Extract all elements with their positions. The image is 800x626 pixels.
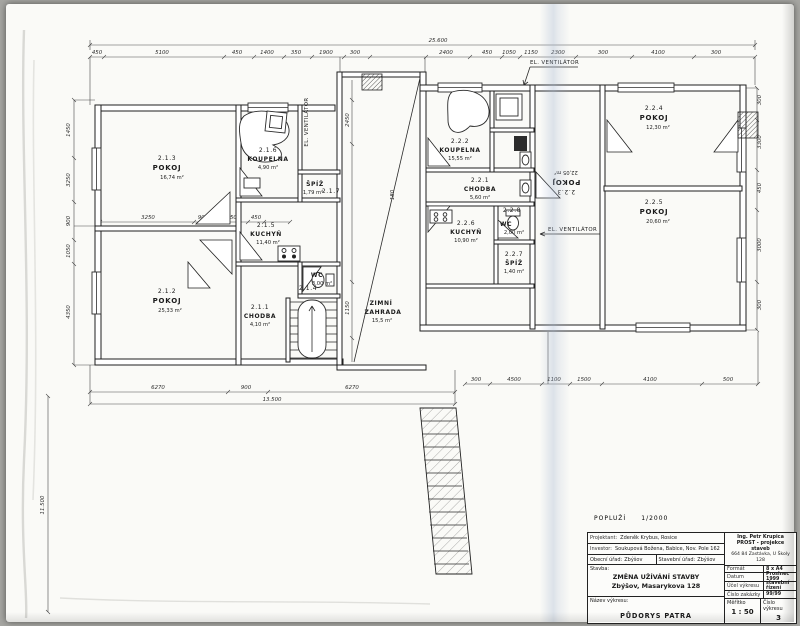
svg-text:2.1.1: 2.1.1	[251, 304, 269, 311]
bathtub-icon	[448, 90, 489, 132]
svg-text:ŠPÍŽ: ŠPÍŽ	[306, 180, 324, 188]
door-swing-icon	[200, 240, 232, 274]
sink-icon	[520, 180, 531, 196]
room-label-2-1-2: 2.1.2 POKOJ 25,33 m²	[153, 288, 182, 314]
dim-inner-3: 450	[251, 215, 262, 221]
dim-top-8: 450	[482, 50, 493, 56]
sink-icon	[520, 152, 531, 168]
paper-crease-lines	[23, 30, 430, 618]
svg-text:4,90 m²: 4,90 m²	[258, 165, 278, 171]
dim-bottom-1: 900	[241, 385, 252, 391]
room-label-2-2-2: 2.2.2 KOUPELNA 15,55 m²	[439, 138, 480, 162]
zakazka-label: Číslo zakázky	[725, 591, 764, 598]
dim-right-4: 300	[757, 299, 763, 310]
shower-icon	[496, 94, 522, 120]
dim-left-4: 4350	[66, 305, 72, 319]
investor-value: Soukupová Božena, Babice, Nov. Pole 162	[615, 546, 720, 552]
dim-top-13: 4100	[651, 50, 665, 56]
svg-text:11,40 m²: 11,40 m²	[256, 240, 280, 246]
svg-text:20,60 m²: 20,60 m²	[646, 219, 670, 225]
dim-top-14: 300	[711, 50, 722, 56]
room-label-2-1-3: 2.1.3 POKOJ 16,74 m²	[153, 155, 184, 181]
projektant-value: Zdeněk Krybus, Rosice	[620, 535, 677, 541]
site-note-text: POPLUŽÍ	[594, 515, 626, 522]
obecni-urad-value: Zbýšov	[624, 557, 642, 563]
svg-text:2.2.1: 2.2.1	[471, 177, 489, 184]
svg-text:2.2.2: 2.2.2	[451, 138, 469, 145]
stavba-line2: Zbýšov, Masarykova 128	[590, 582, 722, 591]
stavebni-urad-label: Stavební úřad:	[659, 557, 696, 563]
format-label: Formát	[725, 566, 764, 573]
stove-icon	[278, 246, 300, 261]
svg-text:2.2.4: 2.2.4	[645, 105, 663, 112]
scale-sheet-row: Měřítko 1 : 50 Číslo výkresu 3	[725, 599, 796, 623]
dim-top-11: 2300	[551, 50, 565, 56]
svg-text:1,40 m²: 1,40 m²	[504, 269, 524, 275]
svg-text:12,30 m²: 12,30 m²	[646, 125, 670, 131]
window-icon	[636, 323, 690, 332]
dim-top-6: 300	[350, 50, 361, 56]
shower-icon	[265, 111, 287, 133]
svg-text:WC: WC	[500, 221, 512, 228]
dim-total-left: 11.500	[40, 495, 46, 514]
window-icon	[92, 272, 101, 314]
dim-top-12: 300	[598, 50, 609, 56]
title-block-left: Projektant: Zdeněk Krybus, Rosice Invest…	[588, 533, 725, 623]
svg-text:CHODBA: CHODBA	[464, 186, 496, 193]
nazev-label: Název výkresu:	[590, 598, 628, 604]
svg-text:16,74 m²: 16,74 m²	[160, 175, 184, 181]
stove-icon	[430, 210, 452, 223]
room-label-2-1-5: 2.1.5 KUCHYŇ 11,40 m²	[250, 222, 282, 246]
svg-text:1,79 m²: 1,79 m²	[303, 190, 323, 196]
dim-total-bottom: 13.500	[263, 397, 282, 403]
svg-text:KUCHYŇ: KUCHYŇ	[250, 230, 282, 238]
drawing-title: PŮDORYS PATRA	[590, 612, 722, 621]
svg-text:2.2.6: 2.2.6	[457, 220, 475, 227]
vent-annotation-top: EL. VENTILÁTOR	[530, 59, 579, 66]
dim-total-top: 25.600	[429, 38, 448, 44]
svg-text:10,90 m²: 10,90 m²	[454, 238, 478, 244]
svg-text:WC: WC	[311, 272, 323, 279]
staircase-interior	[290, 300, 337, 358]
stavba-label: Stavba:	[590, 566, 609, 572]
floorplan-drawing: 25.600 450 5100 450 1400 350 1900 300 24…	[6, 4, 794, 622]
dim-left-3: 1050	[66, 244, 72, 258]
dim-bottom-0: 6270	[151, 385, 165, 391]
title-block-right: Ing. Petr Krupica PROST - projekce stave…	[725, 533, 796, 623]
svg-text:2.2.3: 2.2.3	[557, 188, 575, 195]
svg-text:15,5 m²: 15,5 m²	[372, 318, 392, 324]
ucel-label: Účel výkresu	[725, 582, 764, 590]
zakazka-row: Číslo zakázky 99/99	[725, 591, 796, 599]
stavba-line1: ZMĚNA UŽÍVÁNÍ STAVBY	[590, 573, 722, 582]
dim-left-2: 900	[66, 215, 72, 226]
svg-text:CHODBA: CHODBA	[244, 313, 276, 320]
svg-text:2,00 m²: 2,00 m²	[504, 230, 524, 236]
room-label-zimni-zahrada: ZIMNÍ ZAHRADA 15,5 m²	[364, 299, 401, 324]
door-swing-icon	[196, 192, 230, 224]
firm-company: PROST - projekce staveb	[727, 540, 794, 552]
dim-strip-0: 2450	[345, 113, 351, 127]
svg-text:2.1.3: 2.1.3	[158, 155, 176, 162]
dim-br-5: 500	[723, 377, 734, 383]
dim-left-0: 1450	[66, 123, 72, 137]
ucel-value: stavební řízení	[764, 582, 796, 590]
investor-row: Investor: Soukupová Božena, Babice, Nov.…	[588, 544, 724, 555]
svg-text:POKOJ: POKOJ	[153, 164, 182, 172]
projektant-row: Projektant: Zdeněk Krybus, Rosice	[588, 533, 724, 544]
dim-br-3: 1500	[577, 377, 591, 383]
firm-address: 664 84 Zastávka, U Školy 128	[727, 552, 794, 563]
title-block: Projektant: Zdeněk Krybus, Rosice Invest…	[587, 532, 797, 624]
site-note-scale: 1/2000	[641, 515, 668, 522]
cislo-vykresu-label: Číslo výkresu	[763, 600, 794, 612]
chimney-hatch-icon	[738, 112, 758, 138]
projektant-label: Projektant:	[590, 535, 617, 541]
nazev-section: Název výkresu: PŮDORYS PATRA	[588, 597, 724, 623]
dim-strip-1: 1150	[345, 301, 351, 315]
room-label-2-2-6: 2.2.6 KUCHYŇ 10,90 m²	[450, 220, 482, 244]
dim-br-1: 4500	[507, 377, 521, 383]
dim-inner-0: 3250	[141, 215, 155, 221]
svg-text:KOUPELNA: KOUPELNA	[439, 147, 480, 154]
svg-text:2.1.6: 2.1.6	[259, 147, 277, 154]
dim-top-5: 1900	[319, 50, 333, 56]
svg-text:POKOJ: POKOJ	[153, 297, 182, 305]
svg-text:2.1.7: 2.1.7	[322, 188, 340, 195]
dim-bottom-2: 6270	[345, 385, 359, 391]
svg-text:25,33 m²: 25,33 m²	[158, 308, 182, 314]
dim-top-2: 450	[232, 50, 243, 56]
staircase-exterior	[420, 408, 472, 574]
dim-top-0: 450	[92, 50, 103, 56]
svg-text:22,05 m²: 22,05 m²	[554, 169, 578, 175]
firm-section: Ing. Petr Krupica PROST - projekce stave…	[725, 533, 796, 566]
urady-row: Obecní úřad: Zbýšov Stavební úřad: Zbýšo…	[588, 555, 724, 565]
svg-text:POKOJ: POKOJ	[640, 114, 669, 122]
dim-br-2: 1100	[547, 377, 561, 383]
door-swing-icon	[607, 120, 632, 152]
svg-text:2.2.5: 2.2.5	[645, 199, 663, 206]
svg-text:2.1.5: 2.1.5	[257, 222, 275, 229]
chimney-hatch-icon	[362, 74, 382, 90]
svg-text:ZIMNÍ: ZIMNÍ	[370, 299, 393, 307]
room-label-2-2-3: 2.2.3 POKOJ 22,05 m²	[552, 169, 581, 195]
dim-br-4: 4100	[643, 377, 657, 383]
room-label-2-2-1: 2.2.1 CHODBA 5,60 m²	[464, 177, 496, 201]
shaft-icon	[514, 136, 527, 151]
stavebni-urad-value: Zbýšov	[697, 557, 715, 563]
svg-text:2.2.8: 2.2.8	[503, 207, 521, 214]
dim-top-7: 2400	[439, 50, 453, 56]
room-label-2-1-7: ŠPÍŽ 2.1.7 1,79 m²	[303, 180, 340, 196]
dim-top-3: 1400	[260, 50, 274, 56]
svg-text:ŠPÍŽ: ŠPÍŽ	[505, 259, 523, 267]
svg-text:2.2.7: 2.2.7	[505, 251, 523, 258]
svg-text:5,60 m²: 5,60 m²	[470, 195, 490, 201]
svg-text:POKOJ: POKOJ	[640, 208, 669, 216]
svg-text:KOUPELNA: KOUPELNA	[247, 156, 288, 163]
door-swing-icon	[188, 262, 210, 288]
vent-annotation-mid: EL. VENTILÁTOR	[303, 97, 310, 146]
svg-text:3,00 m²: 3,00 m²	[312, 281, 332, 287]
dim-left-1: 3250	[66, 173, 72, 187]
room-label-2-2-4: 2.2.4 POKOJ 12,30 m²	[640, 105, 670, 131]
obecni-urad-label: Obecní úřad:	[590, 557, 622, 563]
room-label-2-2-5: 2.2.5 POKOJ 20,60 m²	[640, 199, 670, 225]
cislo-vykresu-value: 3	[763, 614, 794, 622]
dim-top-9: 1050	[502, 50, 516, 56]
ucel-row: Účel výkresu stavební řízení	[725, 582, 796, 591]
datum-label: Datum	[725, 573, 764, 581]
svg-text:KUCHYŇ: KUCHYŇ	[450, 228, 482, 236]
dim-right-3: 3000	[757, 238, 763, 252]
room-label-2-2-8: 2.2.8 WC 2,00 m²	[500, 207, 524, 236]
dim-top-10: 1150	[524, 50, 538, 56]
dim-br-0: 300	[471, 377, 482, 383]
svg-text:2.1.2: 2.1.2	[158, 288, 176, 295]
dim-top-1: 5100	[155, 50, 169, 56]
scanned-paper: 25.600 450 5100 450 1400 350 1900 300 24…	[6, 4, 794, 622]
dim-right-0: 300	[757, 94, 763, 105]
meritko-label: Měřítko	[727, 600, 758, 606]
door-swing-icon	[714, 120, 738, 152]
dim-right-2: 450	[757, 182, 763, 193]
meritko-value: 1 : 50	[727, 608, 758, 616]
investor-label: Investor:	[590, 546, 612, 552]
window-icon	[618, 83, 674, 92]
dim-top-4: 350	[291, 50, 302, 56]
window-icon	[92, 148, 101, 190]
site-note: POPLUŽÍ 1/2000	[594, 505, 668, 524]
stavba-section: Stavba: ZMĚNA UŽÍVÁNÍ STAVBY Zbýšov, Mas…	[588, 565, 724, 597]
svg-text:4,10 m²: 4,10 m²	[250, 322, 270, 328]
svg-text:POKOJ: POKOJ	[552, 178, 581, 186]
room-label-2-2-7: 2.2.7 ŠPÍŽ 1,40 m²	[504, 251, 524, 275]
room-label-2-1-1: 2.1.1 CHODBA 4,10 m²	[244, 304, 276, 328]
svg-text:ZAHRADA: ZAHRADA	[364, 309, 401, 316]
svg-text:15,55 m²: 15,55 m²	[448, 156, 472, 162]
window-icon	[248, 103, 288, 112]
window-icon	[737, 238, 746, 282]
vent-annotation-right: EL. VENTILÁTOR	[548, 226, 597, 233]
zakazka-value: 99/99	[764, 591, 796, 598]
sink-icon	[244, 178, 260, 188]
